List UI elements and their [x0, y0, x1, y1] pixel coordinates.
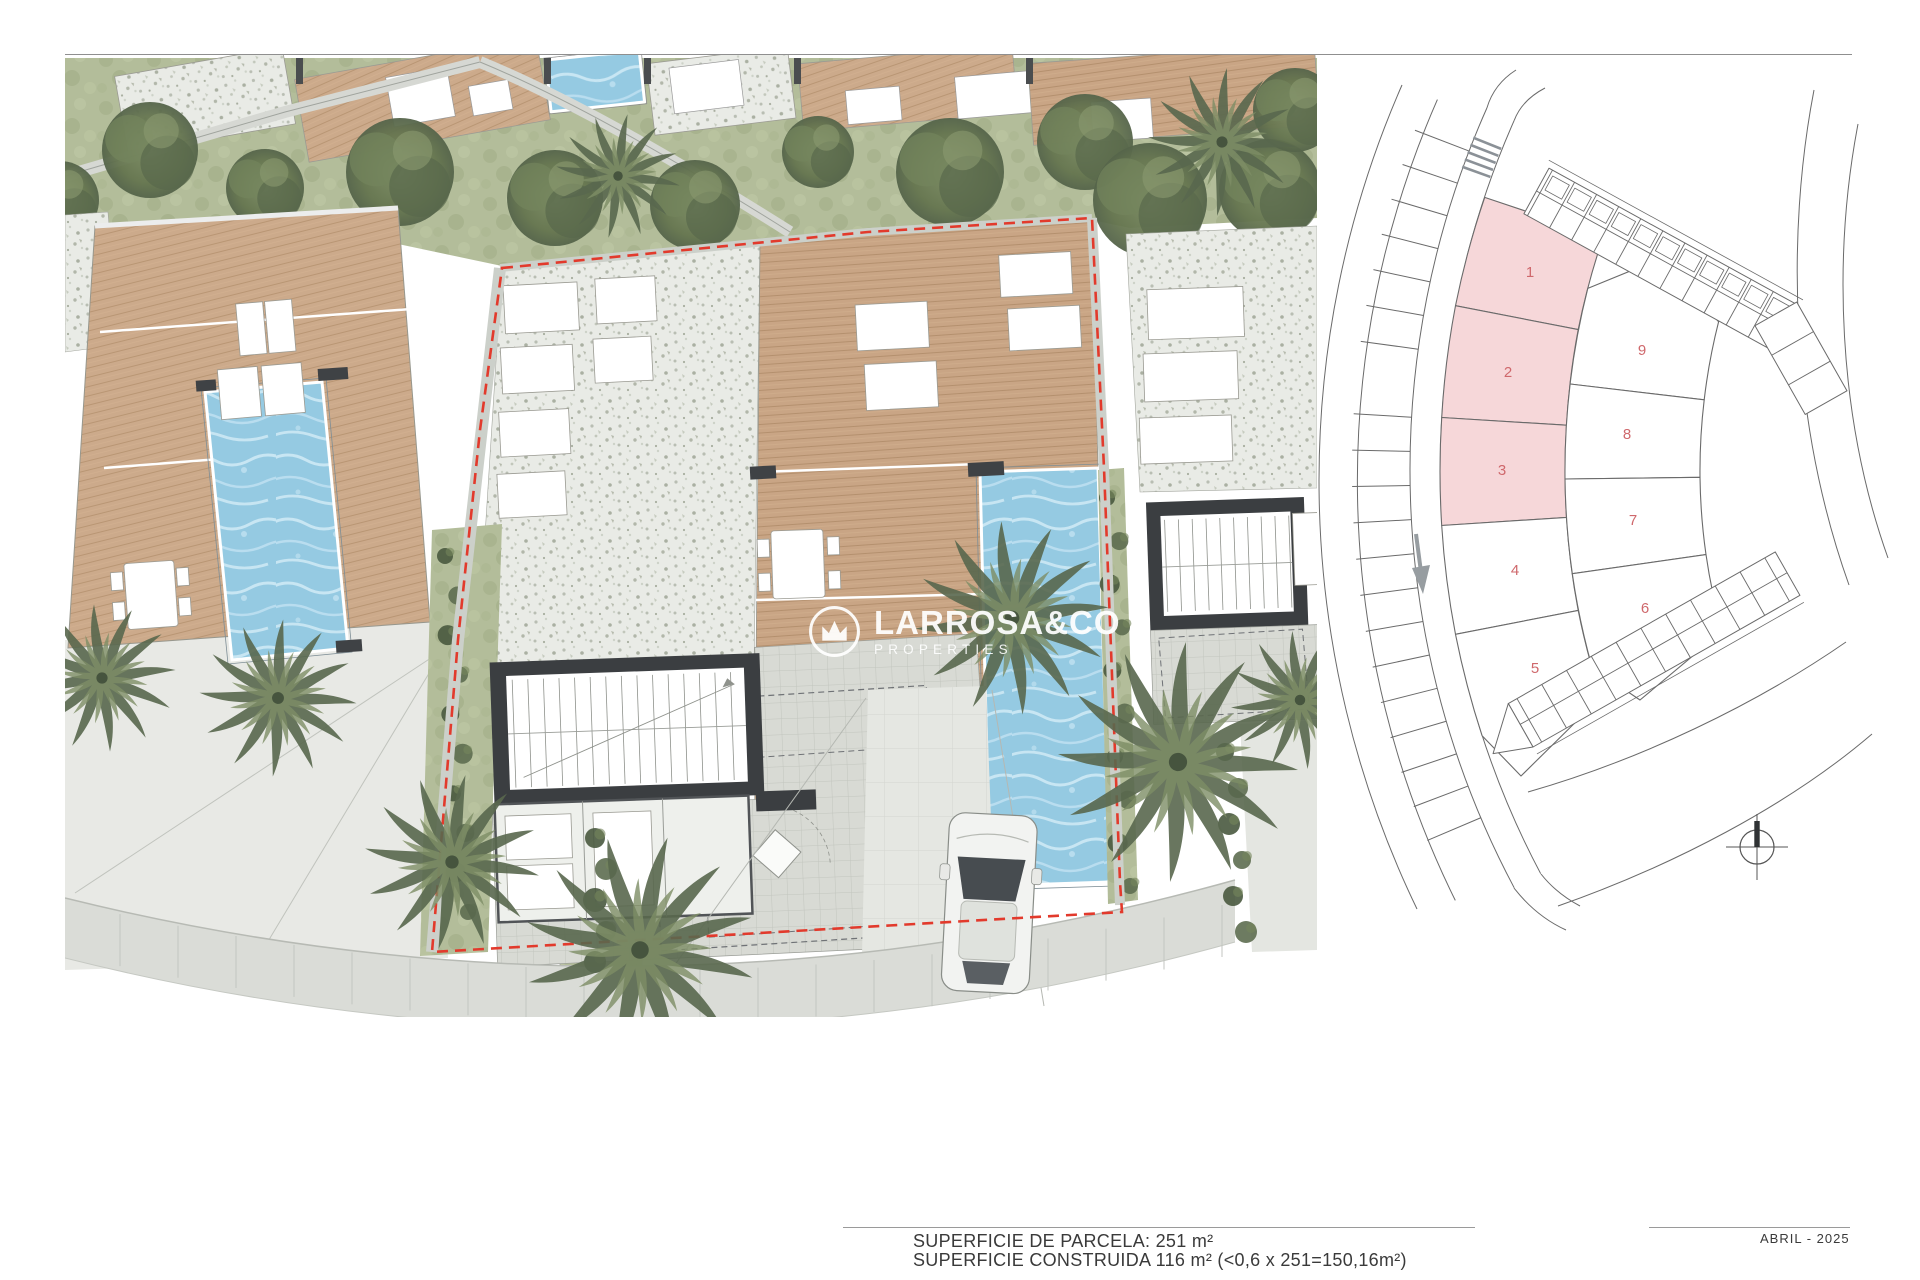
brand-name: LARROSA&CO: [874, 606, 1121, 639]
brand-tagline: PROPERTIES: [874, 643, 1121, 657]
right-plot-loungers: [1135, 286, 1249, 464]
plan-sheet: 1 2 3 4 5 6 7 8 9 LAR: [0, 0, 1920, 1280]
plot-number-7: 7: [1629, 512, 1637, 529]
key-plan: 1 2 3 4 5 6 7 8 9: [1319, 70, 1888, 930]
plan-date: ABRIL - 2025: [1760, 1231, 1850, 1246]
plot-number-2: 2: [1504, 364, 1512, 381]
plot-number-5: 5: [1531, 660, 1539, 677]
plot-number-1: 1: [1526, 264, 1534, 281]
date-separator: [1649, 1227, 1850, 1228]
zebra-crossing: [1462, 138, 1501, 177]
built-area-text: SUPERFICIE CONSTRUIDA 116 m² (<0,6 x 251…: [913, 1251, 1407, 1270]
plot-number-8: 8: [1623, 426, 1631, 443]
car: [934, 812, 1045, 995]
key-plan-plot-8: [1565, 384, 1704, 479]
north-compass-icon: [1726, 814, 1788, 880]
plot-number-6: 6: [1641, 600, 1649, 617]
parcel-area-text: SUPERFICIE DE PARCELA: 251 m²: [913, 1232, 1407, 1251]
left-plot: [65, 208, 430, 664]
title-separator: [843, 1227, 1475, 1228]
bench: [756, 789, 817, 811]
key-plan-building-north-wing: [1755, 302, 1847, 414]
site-plan: [21, 37, 1369, 1097]
plot-number-4: 4: [1511, 562, 1519, 579]
brand-logo-icon: [806, 603, 863, 660]
brand-watermark: LARROSA&CO PROPERTIES: [806, 603, 1121, 660]
title-block: SUPERFICIE DE PARCELA: 251 m² SUPERFICIE…: [913, 1232, 1407, 1270]
main-house: [490, 653, 769, 922]
plot-number-9: 9: [1638, 342, 1646, 359]
plot-number-3: 3: [1498, 462, 1506, 479]
